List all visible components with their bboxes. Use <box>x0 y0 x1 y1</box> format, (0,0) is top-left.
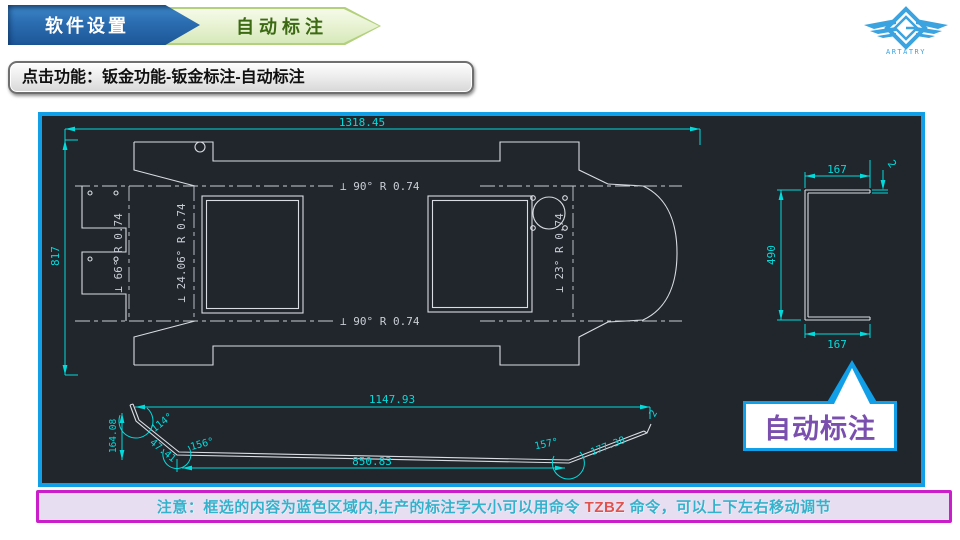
dim-side-flange-top: 167 <box>827 163 847 176</box>
brand-logo: ARTATRY <box>856 4 956 56</box>
instruction-text: 点击功能：钣金功能-钣金标注-自动标注 <box>22 69 305 86</box>
overall-dim-texts: 1318.45 817 <box>49 116 385 266</box>
dim-side-thickness: 2 <box>885 158 899 171</box>
note-text: 注意：框选的内容为蓝色区域内,生产的标注字大小可以用命令 TZBZ 命令，可以上… <box>157 496 831 517</box>
overall-dim-arrows <box>63 127 700 375</box>
instruction-box: 点击功能：钣金功能-钣金标注-自动标注 <box>8 61 474 94</box>
dim-profile-len-left: 47.41 <box>147 437 177 464</box>
side-view-profile <box>805 190 870 320</box>
flat-pattern-outline <box>82 142 677 365</box>
callout-label: 自动标注 <box>764 407 876 446</box>
slide: { "header": { "step1_label": "软件设置", "st… <box>0 0 960 540</box>
dim-profile-width-bottom: 850.83 <box>352 455 392 468</box>
side-view-dim-lines <box>777 160 888 338</box>
logo-text: ARTATRY <box>886 48 926 56</box>
side-view-dim-arrows <box>779 174 886 337</box>
dim-overall-height: 817 <box>49 246 62 266</box>
side-view-dim-texts: 167 490 167 2 <box>765 158 899 351</box>
bend-labels: ⊥ 90° R 0.74 ⊥ 90° R 0.74 ⊥ 66° R 0.74 ⊥… <box>112 180 566 328</box>
dim-profile-angle-left: 114° <box>150 411 176 435</box>
step2-label: 自动标注 <box>210 13 328 39</box>
dim-profile-len-right: 177.38 <box>589 435 627 458</box>
bend-label-left: ⊥ 66° R 0.74 <box>112 213 125 293</box>
dim-side-height: 490 <box>765 245 778 265</box>
bend-label-right: ⊥ 23° R 0.74 <box>553 213 566 293</box>
overall-dim-lines <box>65 129 700 375</box>
dim-profile-thickness: 2 <box>648 408 661 419</box>
bend-label-mid: ⊥ 24.06° R 0.74 <box>175 203 188 303</box>
dim-profile-angle-mid: 156° <box>189 436 215 453</box>
dim-overall-width: 1318.45 <box>339 116 385 129</box>
bend-label-top: ⊥ 90° R 0.74 <box>340 180 420 193</box>
step1-label: 软件设置 <box>45 12 163 38</box>
dim-profile-angle-right: 157° <box>534 437 560 453</box>
dim-profile-width-top: 1147.93 <box>369 393 415 406</box>
note-bar: 注意：框选的内容为蓝色区域内,生产的标注字大小可以用命令 TZBZ 命令，可以上… <box>36 490 952 523</box>
bend-centerlines <box>75 186 682 321</box>
callout-auto-annotation: 自动标注 <box>743 401 897 451</box>
dim-side-flange-bottom: 167 <box>827 338 847 351</box>
note-suffix: 命令，可以上下左右移动调节 <box>625 499 831 516</box>
note-prefix: 注意：框选的内容为蓝色区域内,生产的标注字大小可以用命令 <box>157 499 585 516</box>
bend-label-bottom: ⊥ 90° R 0.74 <box>340 315 420 328</box>
step-tab-software-settings: 软件设置 <box>8 5 200 45</box>
dim-profile-height-left: 164.08 <box>108 419 119 454</box>
note-command: TZBZ <box>585 499 625 516</box>
